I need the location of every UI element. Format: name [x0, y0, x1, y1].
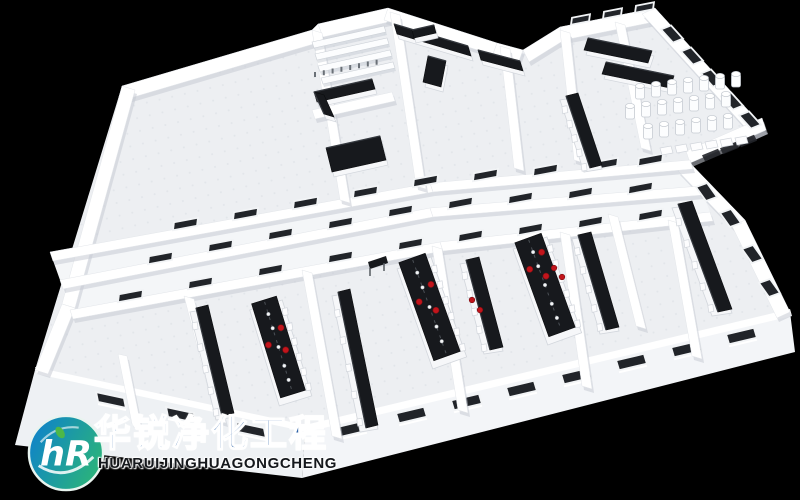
company-logo: hR 华锐净化工程 HUARUIJINGHUAGONGCHENG: [26, 412, 337, 494]
logo-latin-text: HUARUIJINGHUAGONGCHENG: [98, 455, 337, 472]
render-viewport: hR 华锐净化工程 HUARUIJINGHUAGONGCHENG: [0, 0, 800, 500]
logo-letters: hR: [40, 434, 92, 475]
logo-names: 华锐净化工程 HUARUIJINGHUAGONGCHENG: [94, 412, 337, 472]
logo-chinese-text: 华锐净化工程: [94, 414, 337, 454]
